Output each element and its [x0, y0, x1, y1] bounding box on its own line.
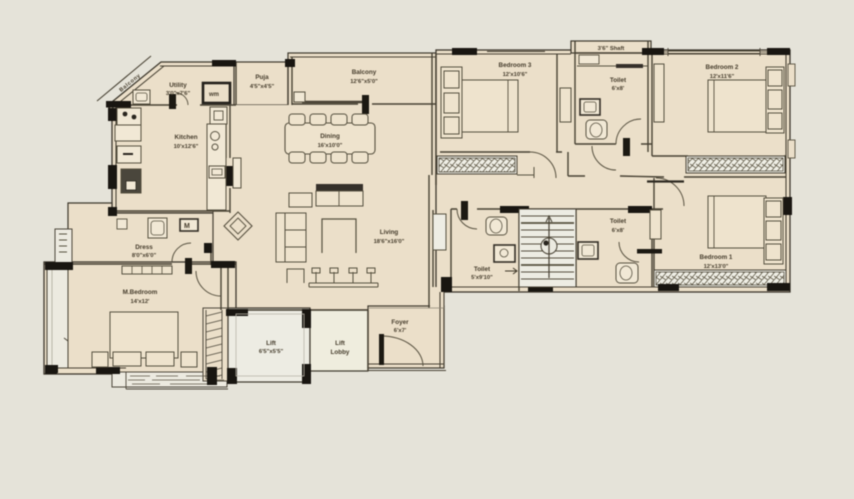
- svg-text:6'x8': 6'x8': [612, 86, 625, 92]
- svg-text:6'x7': 6'x7': [394, 328, 407, 334]
- svg-text:Toilet: Toilet: [610, 218, 627, 225]
- svg-text:4'5"x4'5": 4'5"x4'5": [250, 84, 275, 90]
- svg-text:Kitchen: Kitchen: [174, 134, 197, 141]
- svg-text:Utility: Utility: [169, 82, 187, 89]
- svg-text:Lift: Lift: [335, 340, 346, 347]
- svg-text:6'x8': 6'x8': [612, 228, 625, 234]
- svg-text:Toilet: Toilet: [474, 266, 491, 273]
- svg-text:12'x10'6": 12'x10'6": [503, 72, 528, 78]
- svg-text:8'0"x6'0": 8'0"x6'0": [132, 253, 157, 259]
- svg-text:3'0"x7'6": 3'0"x7'6": [166, 91, 191, 97]
- svg-text:Bedroom 3: Bedroom 3: [499, 62, 532, 69]
- svg-text:Puja: Puja: [255, 74, 269, 81]
- svg-text:Bedroom 2: Bedroom 2: [706, 64, 739, 71]
- svg-text:Lift: Lift: [266, 340, 277, 347]
- svg-text:5'x9'10": 5'x9'10": [471, 275, 493, 281]
- svg-text:Dining: Dining: [320, 133, 340, 140]
- svg-text:10'x12'6": 10'x12'6": [174, 144, 199, 150]
- svg-text:6'5"x5'5": 6'5"x5'5": [259, 349, 284, 355]
- svg-text:18'6"x16'0": 18'6"x16'0": [374, 239, 405, 245]
- svg-text:12'x11'6": 12'x11'6": [710, 74, 735, 80]
- svg-text:Toilet: Toilet: [610, 77, 627, 84]
- svg-text:Dress: Dress: [135, 244, 153, 251]
- svg-text:wm: wm: [208, 92, 219, 98]
- svg-text:M.Bedroom: M.Bedroom: [123, 289, 158, 296]
- svg-text:12'x13'0": 12'x13'0": [704, 264, 729, 270]
- svg-text:16'x10'0": 16'x10'0": [318, 143, 343, 149]
- svg-text:Foyer: Foyer: [391, 319, 409, 326]
- svg-text:M: M: [184, 223, 190, 230]
- svg-text:12'6"x5'0": 12'6"x5'0": [350, 79, 378, 85]
- svg-text:Lobby: Lobby: [331, 349, 350, 356]
- svg-text:14'x12': 14'x12': [131, 299, 150, 305]
- svg-text:Living: Living: [380, 229, 399, 236]
- svg-text:Bedroom 1: Bedroom 1: [700, 254, 733, 261]
- svg-text:Balcony: Balcony: [352, 69, 377, 76]
- svg-text:3'6" Shaft: 3'6" Shaft: [598, 46, 625, 52]
